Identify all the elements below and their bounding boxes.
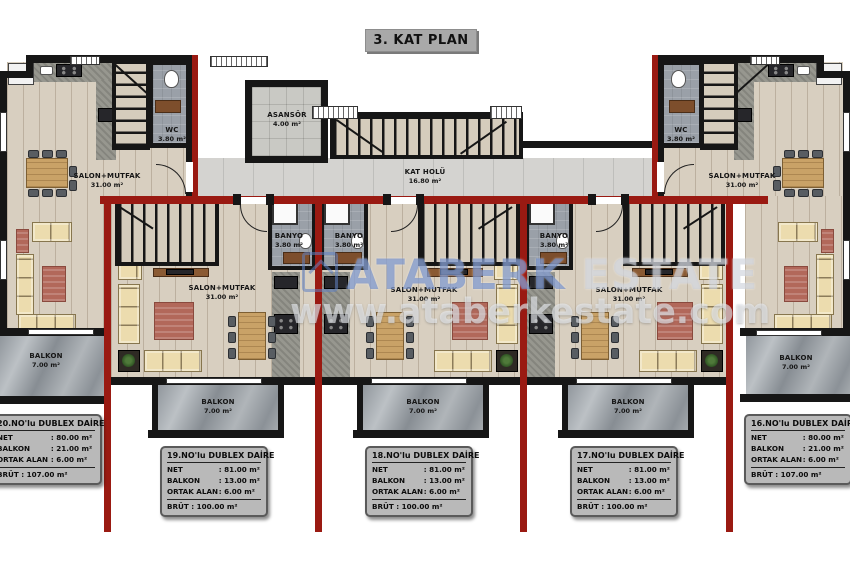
unit16-stairs — [700, 60, 738, 150]
door-opening — [596, 197, 621, 204]
door-post — [383, 194, 391, 205]
balcony-rail — [558, 430, 694, 438]
stove — [768, 64, 794, 77]
sofa — [778, 222, 818, 242]
chair — [42, 150, 53, 158]
red-divider — [520, 196, 527, 532]
balcony-window — [576, 378, 672, 384]
balcony-wall — [483, 384, 489, 430]
unit17-info-table: 17.NO'lu DUBLEX DAİRE NET: 81.00 m² BALK… — [570, 446, 678, 517]
unit16-wc-label: WC 3.80 m² — [661, 126, 701, 144]
floor-plan-page: { "title": "3. KAT PLAN", "watermark": {… — [0, 0, 850, 566]
shower — [324, 202, 350, 225]
wall — [523, 141, 660, 148]
tv — [166, 269, 194, 275]
dining-table — [26, 158, 68, 188]
unit16-salon-label: SALON+MUTFAK 31.00 m² — [707, 172, 777, 190]
balcony-rail — [148, 430, 284, 438]
vanity — [669, 100, 695, 113]
chair — [228, 348, 236, 359]
unit19-info-table: 19.NO'lu DUBLEX DAİRE NET: 81.00 m² BALK… — [160, 446, 268, 517]
window — [490, 106, 522, 119]
balcony-window — [371, 378, 467, 384]
plant-table — [496, 350, 518, 372]
chair — [611, 348, 619, 359]
balcony-wall — [688, 384, 694, 430]
chair — [571, 348, 579, 359]
unit16-balcony-label: BALKON 7.00 m² — [766, 354, 826, 372]
unit18-info-table: 18.NO'lu DUBLEX DAİRE NET: 81.00 m² BALK… — [365, 446, 473, 517]
kitchen-sink — [274, 276, 298, 289]
wall — [843, 71, 850, 336]
chair — [28, 150, 39, 158]
door-post — [233, 194, 241, 205]
plant-table — [118, 350, 140, 372]
chair — [798, 150, 809, 158]
sofa — [16, 254, 34, 315]
chair — [28, 189, 39, 197]
window — [0, 240, 7, 280]
chair — [784, 150, 795, 158]
balcony-window — [28, 329, 94, 335]
window — [750, 56, 780, 65]
unit19-bath-label: BANYO 3.80 m² — [270, 232, 308, 250]
watermark-logo-icon — [302, 252, 338, 292]
kitchen-sink — [797, 66, 810, 75]
chair — [611, 332, 619, 343]
unit16-info-table: 16.NO'lu DUBLEX DAİRE NET: 80.00 m² BALK… — [744, 414, 850, 485]
rug — [16, 229, 29, 253]
watermark-url: www.ataberkestate.com — [290, 292, 770, 332]
plant-icon — [122, 354, 135, 367]
chair — [366, 348, 374, 359]
door-opening — [657, 162, 664, 192]
window — [312, 106, 358, 119]
sofa — [816, 254, 834, 315]
hall-label: KAT HOLÜ 16.80 m² — [395, 168, 455, 186]
unit19-balcony-label: BALKON 7.00 m² — [188, 398, 248, 416]
unit20-stairs — [112, 60, 150, 150]
chair — [406, 348, 414, 359]
unit17-balcony-label: BALKON 7.00 m² — [598, 398, 658, 416]
elevator-label: ASANSÖR 4.00 m² — [257, 111, 317, 129]
shower — [529, 202, 555, 225]
chair — [228, 332, 236, 343]
chair — [366, 332, 374, 343]
chair — [812, 150, 823, 158]
rug — [784, 266, 808, 302]
window — [0, 112, 7, 152]
unit20-info-table: 20.NO'lu DUBLEX DAİRE NET: 80.00 m² BALK… — [0, 414, 102, 485]
sofa — [639, 350, 697, 372]
stove — [56, 64, 82, 77]
unit19-salon-label: SALON+MUTFAK 31.00 m² — [187, 284, 257, 302]
window — [843, 112, 850, 152]
chair — [42, 189, 53, 197]
unit18-balcony-label: BALKON 7.00 m² — [393, 398, 453, 416]
shower — [272, 202, 298, 225]
balcony-wall — [152, 384, 158, 430]
rug — [154, 302, 194, 340]
toilet — [164, 70, 179, 88]
door-post — [588, 194, 596, 205]
vanity — [155, 100, 181, 113]
red-divider — [726, 196, 733, 532]
kitchen-sink — [40, 66, 53, 75]
sofa — [144, 350, 202, 372]
chair — [268, 348, 276, 359]
unit20-balcony-label: BALKON 7.00 m² — [16, 352, 76, 370]
plant-icon — [705, 354, 718, 367]
sofa — [32, 222, 72, 242]
door-post — [416, 194, 424, 205]
oven — [736, 108, 752, 122]
dining-table — [782, 158, 824, 188]
unit20-wc-label: WC 3.80 m² — [152, 126, 192, 144]
toilet — [671, 70, 686, 88]
door-opening — [391, 197, 416, 204]
window — [70, 56, 100, 65]
chair — [784, 189, 795, 197]
balcony-wall — [278, 384, 284, 430]
chair — [268, 332, 276, 343]
unit20-salon-label: SALON+MUTFAK 31.00 m² — [72, 172, 142, 190]
unit18-bath-label: BANYO 3.80 m² — [328, 232, 370, 250]
balcony-wall — [357, 384, 363, 430]
door-post — [266, 194, 274, 205]
red-divider — [104, 196, 111, 532]
rug — [821, 229, 834, 253]
door-opening — [241, 197, 266, 204]
red-party-wall — [100, 196, 768, 204]
chair — [56, 189, 67, 197]
wall — [0, 71, 7, 336]
unit19-stairs — [115, 200, 219, 266]
sofa — [434, 350, 492, 372]
chair — [56, 150, 67, 158]
chair — [812, 189, 823, 197]
chair — [571, 332, 579, 343]
red-divider — [315, 196, 322, 532]
door-post — [621, 194, 629, 205]
balcony-wall — [562, 384, 568, 430]
unit17-bath-label: BANYO 3.80 m² — [533, 232, 575, 250]
window — [843, 240, 850, 280]
balcony-rail — [353, 430, 489, 438]
plant-table — [701, 350, 723, 372]
balcony-rail — [0, 396, 110, 404]
wall — [26, 55, 193, 63]
dining-table — [238, 312, 266, 360]
window — [210, 56, 268, 67]
plan-title: 3. KAT PLAN — [365, 29, 477, 52]
chair — [406, 332, 414, 343]
door-opening — [186, 162, 193, 192]
chair — [228, 316, 236, 327]
chair — [268, 316, 276, 327]
plant-icon — [500, 354, 513, 367]
balcony-window — [166, 378, 262, 384]
rug — [42, 266, 66, 302]
chair — [798, 189, 809, 197]
sofa — [118, 284, 140, 344]
wall — [657, 55, 824, 63]
balcony-rail — [740, 394, 850, 402]
